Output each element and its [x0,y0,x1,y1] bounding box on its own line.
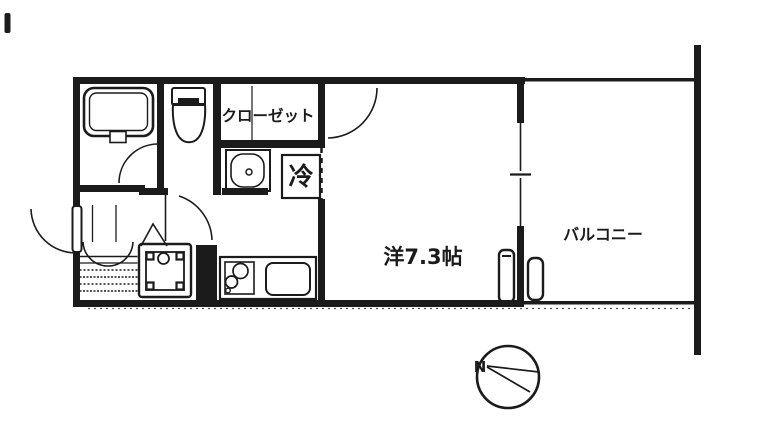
compass-circle [477,346,539,408]
folding-door-triangle [141,224,167,246]
washbasin-icon [226,150,270,191]
wall-toilet-washbasin [213,84,221,195]
wall-closet-bottom [213,140,325,148]
compass-north-label: N [474,358,487,376]
balcony-window [510,123,531,226]
kitchen-counter [220,257,316,299]
closet-label: クローゼット [221,106,314,125]
closet-door-arc [328,88,377,138]
entrance-door-leaf [73,206,82,252]
sink-icon [266,263,310,295]
wall-bathroom-bottom [73,185,145,192]
floor-plan: 冷 クローゼット 洋7.3帖 バルコニー N [0,0,765,433]
wall-kitchen-mainroom [318,199,325,303]
main-room-label: 洋7.3帖 [383,245,462,269]
toilet-icon [172,88,205,142]
compass: N [474,346,539,408]
wall-left-lower [73,251,80,307]
entrance-floor-hatch [80,257,138,292]
wall-washer-kitchen [196,245,217,302]
wall-top-balcony [521,78,694,82]
washing-machine-icon [139,244,191,297]
wall-bathroom-toilet [157,84,164,192]
balcony-label: バルコニー [563,225,643,244]
refrigerator-label: 冷 [288,162,313,191]
shutter-box-icon [499,250,514,302]
burner-icon [226,276,238,288]
wall-right-building [694,45,701,355]
toilet-door-arc [179,196,212,240]
entrance-door-arc [31,209,76,253]
wall-balcony-divider-bottom [517,226,524,303]
knob-icon [226,288,231,293]
burner-icon [233,264,248,279]
scan-mark [5,13,11,33]
wall-toilet-bottom [139,188,168,195]
wall-bottom-main [73,300,524,307]
wall-bottom-balcony [524,301,694,305]
wall-closet-right [318,84,325,148]
bathtub-icon [84,88,153,143]
wall-top-main [73,77,525,84]
floor-plan-drawing: 冷 クローゼット 洋7.3帖 バルコニー N [0,0,765,433]
bathroom-door-arc [119,144,158,183]
refrigerator-icon: 冷 [282,155,320,198]
shutter-box-icon [528,258,543,300]
wall-balcony-divider-top [517,77,524,123]
